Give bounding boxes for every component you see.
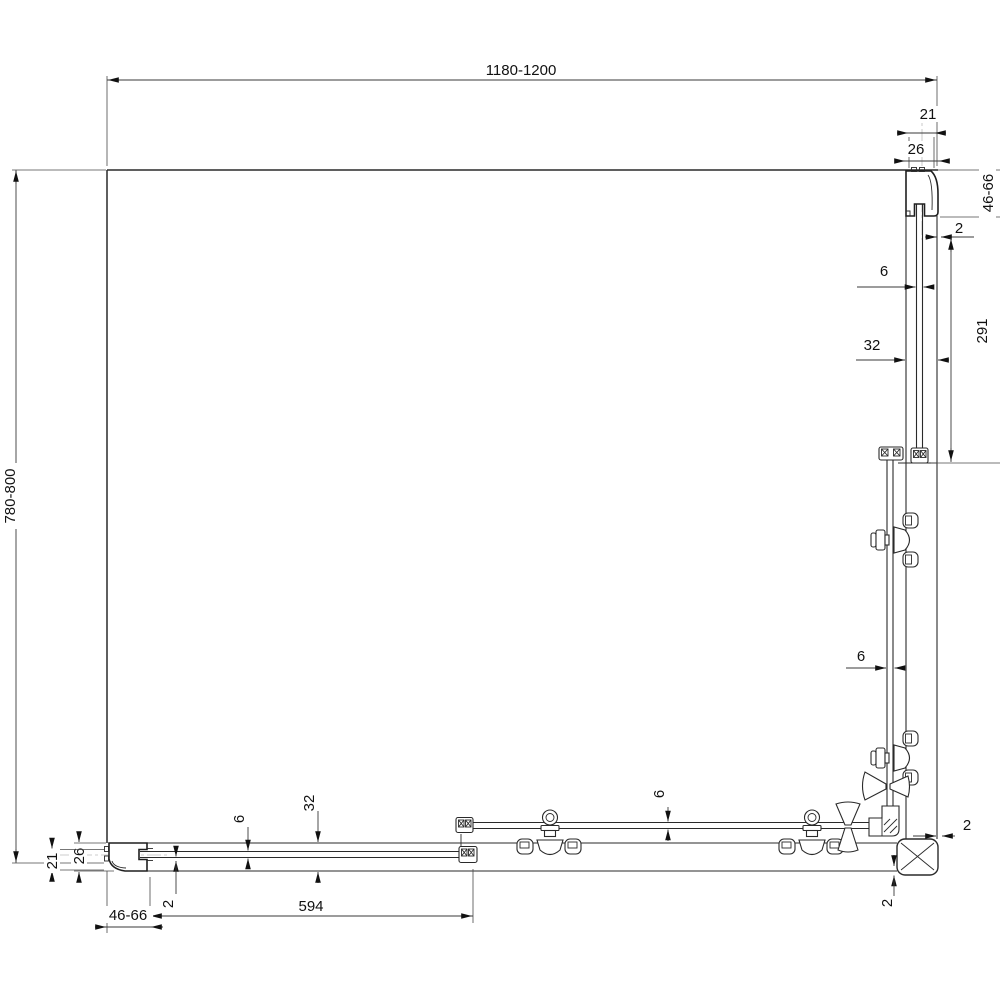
dim-gap-top-right: 2 <box>925 220 974 237</box>
dim-overall-width-label: 1180-1200 <box>486 62 557 79</box>
dim-gap-bottom-left-label: 2 <box>160 900 177 908</box>
dim-gap-bottom-right-label: 2 <box>879 899 896 907</box>
guide-wheel-icon <box>863 772 887 800</box>
dim-gap-bottom-right: 2 <box>879 855 896 907</box>
dim-gap-right-lower-label: 2 <box>963 817 971 834</box>
dim-profile-height-right: 46-66 <box>940 168 1000 218</box>
dim-profile-inner-top: 21 <box>897 106 946 168</box>
dim-fixed-panel-right-label: 291 <box>974 318 991 343</box>
dim-overall-depth-label: 780-800 <box>2 468 19 523</box>
dim-gap-right-lower: 2 <box>913 817 971 836</box>
door-corner-connector <box>869 806 899 836</box>
dim-fixed-panel-bottom-label: 594 <box>298 898 323 915</box>
dim-overall-depth: 780-800 <box>1 170 106 863</box>
dim-rail-bottom: 32 <box>301 795 318 883</box>
fixed-glass-panels <box>140 204 923 858</box>
dim-profile-inner-top-label: 21 <box>920 106 937 123</box>
dim-door-glass-right: 6 <box>846 648 904 668</box>
dim-rail-bottom-label: 32 <box>301 795 318 812</box>
dim-glass-right-label: 6 <box>880 263 888 280</box>
dim-profile-height-bottom: 46-66 <box>95 906 163 927</box>
dim-rail-right: 32 <box>856 337 949 360</box>
dim-glass-bottom-label: 6 <box>231 815 248 823</box>
dim-door-glass-bottom-label: 6 <box>651 790 668 798</box>
dim-gap-top-right-label: 2 <box>955 220 963 237</box>
dim-door-glass-right-label: 6 <box>857 648 865 665</box>
door-roller-bottom-left <box>517 810 581 855</box>
dim-glass-right: 6 <box>857 263 933 287</box>
dim-overall-width: 1180-1200 <box>107 61 937 166</box>
shower-enclosure-technical-drawing: 1180-1200 780-800 21 26 <box>0 0 1000 1000</box>
dim-door-glass-bottom: 6 <box>651 790 668 841</box>
dim-glass-bottom: 6 <box>231 815 248 869</box>
dim-profile-inner-bottom-label: 21 <box>44 853 61 870</box>
guide-wheel-icon <box>838 828 858 852</box>
dim-rail-right-label: 32 <box>864 337 881 354</box>
rail-lines <box>147 216 937 871</box>
corner-post <box>897 839 938 875</box>
door-roller-right-upper <box>871 513 918 567</box>
door-end-bracket-bottom <box>456 818 473 833</box>
fixed-panel-end-cap-right <box>911 448 928 463</box>
centerlines <box>55 106 922 855</box>
dim-profile-outer-bottom-label: 26 <box>71 848 88 865</box>
dim-profile-height-right-label: 46-66 <box>980 174 997 212</box>
sliding-door-panels <box>459 459 893 829</box>
dim-fixed-panel-bottom: 594 <box>150 869 473 923</box>
fixed-panel-end-cap-bottom <box>459 847 477 863</box>
dim-fixed-panel-right: 291 <box>931 238 1000 463</box>
dim-profile-height-bottom-label: 46-66 <box>109 907 147 924</box>
door-top-bracket-right <box>879 447 903 460</box>
dim-gap-bottom-left: 2 <box>160 846 177 908</box>
door-roller-right-lower <box>863 731 919 800</box>
dim-profile-outer-top-label: 26 <box>908 141 925 158</box>
guide-wheel-icon <box>836 802 860 825</box>
